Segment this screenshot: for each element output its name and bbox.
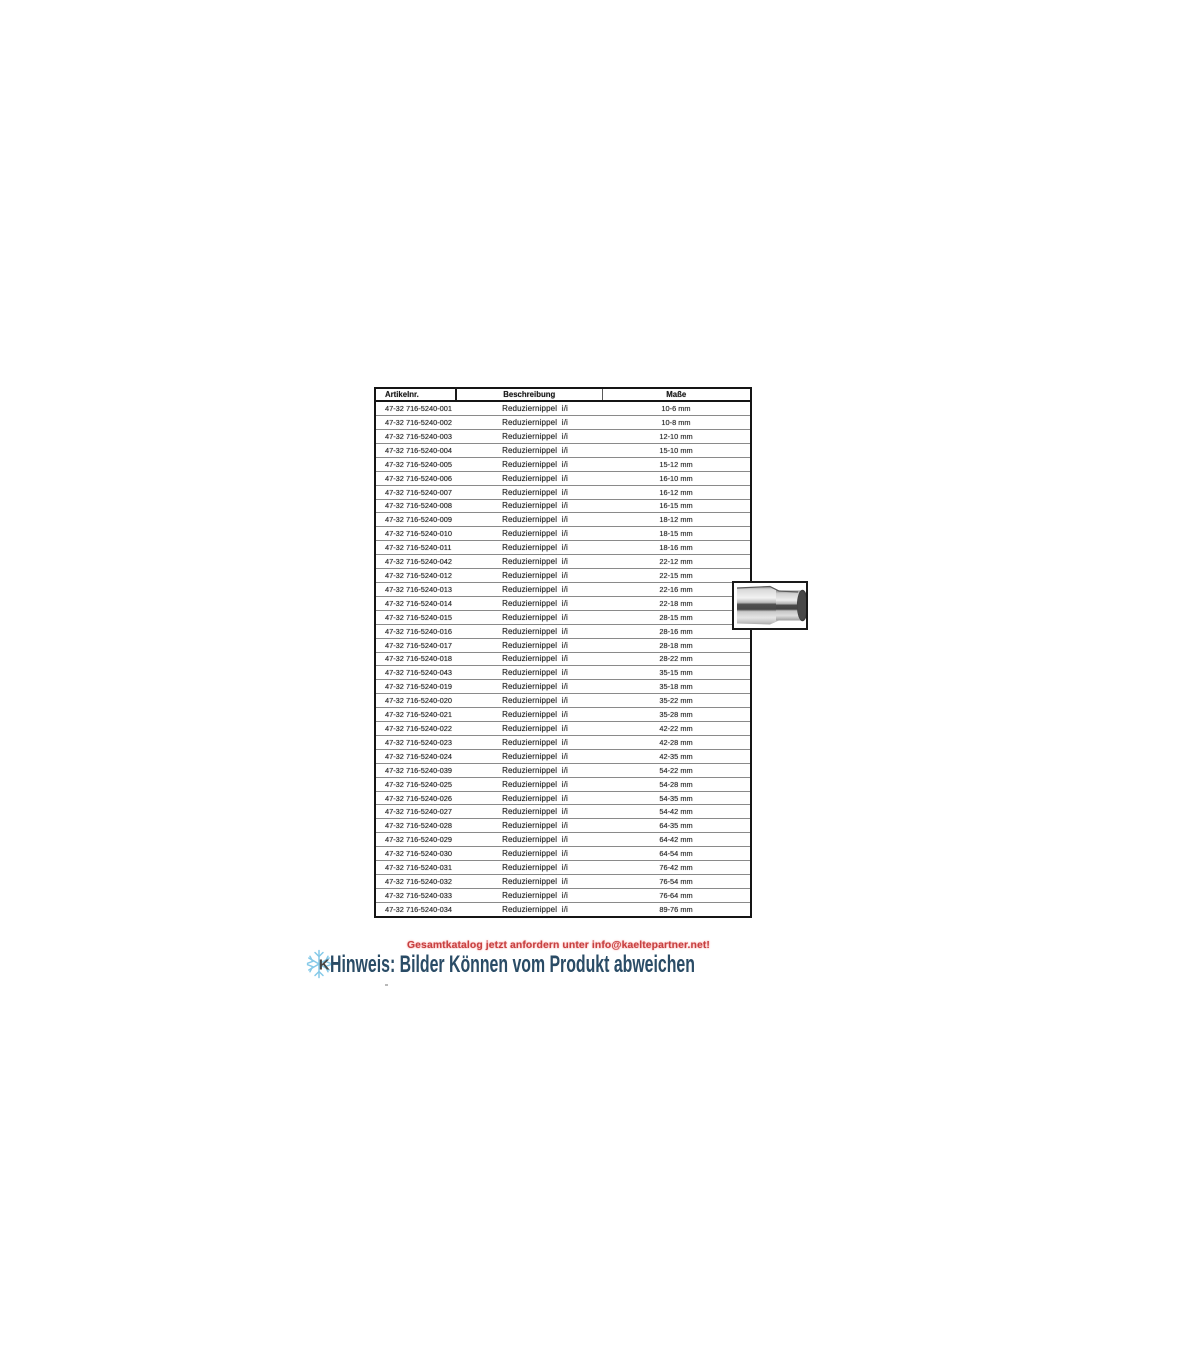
svg-text:K: K xyxy=(319,956,330,973)
